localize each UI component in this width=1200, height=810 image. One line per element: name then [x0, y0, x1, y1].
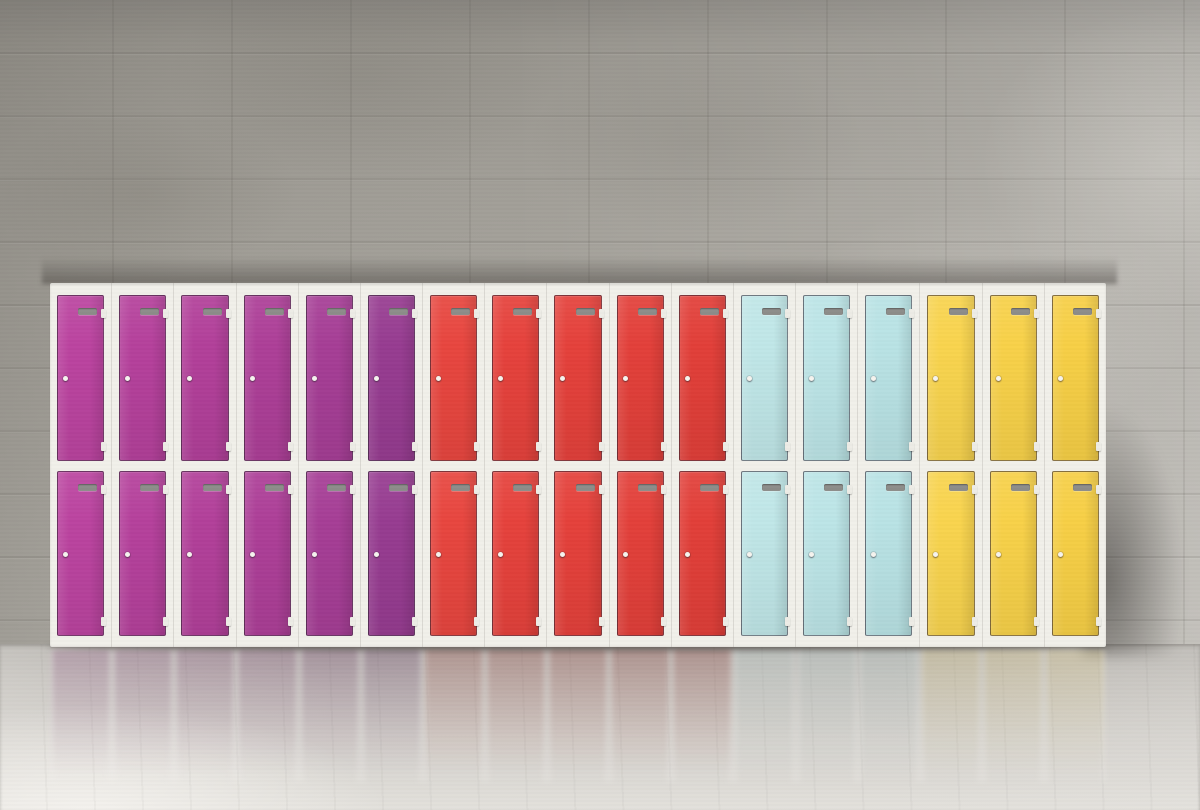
hinge-top-icon [599, 309, 604, 318]
locker-door-bottom [554, 471, 601, 636]
hinge-bottom-icon [163, 617, 168, 626]
hinge-top-icon [1034, 485, 1039, 494]
hinge-bottom-icon [723, 617, 728, 626]
hinge-bottom-icon [101, 617, 106, 626]
locker-door-bottom [119, 471, 166, 636]
hinge-top-icon [226, 309, 231, 318]
locker-reflection-band [797, 650, 857, 782]
vent-slot-icon [327, 484, 346, 491]
locker-column-yellow [919, 283, 981, 647]
keyhole-icon [187, 552, 192, 557]
locker-room-photo [0, 0, 1200, 810]
locker-door-bottom [927, 471, 974, 636]
keyhole-icon [685, 376, 690, 381]
keyhole-icon [560, 552, 565, 557]
keyhole-icon [312, 552, 317, 557]
keyhole-icon [498, 552, 503, 557]
locker-door-top [57, 295, 104, 461]
locker-door-top [990, 295, 1037, 461]
locker-column-cyan [795, 283, 857, 647]
keyhole-icon [871, 552, 876, 557]
locker-door-top [306, 295, 353, 461]
locker-column-magenta [173, 283, 235, 647]
vent-slot-icon [576, 484, 595, 491]
hinge-bottom-icon [288, 617, 293, 626]
keyhole-icon [623, 552, 628, 557]
locker-door-bottom [492, 471, 539, 636]
vent-slot-icon [140, 484, 159, 491]
hinge-top-icon [163, 485, 168, 494]
vent-slot-icon [638, 308, 657, 315]
locker-door-top [492, 295, 539, 461]
keyhole-icon [933, 376, 938, 381]
locker-column-cyan [733, 283, 795, 647]
locker-reflection-band [175, 650, 235, 782]
hinge-bottom-icon [412, 442, 417, 451]
locker-reflection-band [859, 650, 919, 782]
hinge-bottom-icon [536, 617, 541, 626]
locker-door-bottom [368, 471, 415, 636]
keyhole-icon [436, 376, 441, 381]
vent-slot-icon [140, 308, 159, 315]
vent-slot-icon [389, 484, 408, 491]
locker-column-magenta [236, 283, 298, 647]
keyhole-icon [871, 376, 876, 381]
hinge-top-icon [1096, 485, 1101, 494]
hinge-bottom-icon [350, 617, 355, 626]
hinge-bottom-icon [785, 442, 790, 451]
hinge-bottom-icon [972, 617, 977, 626]
vent-slot-icon [700, 484, 719, 491]
vent-slot-icon [451, 484, 470, 491]
keyhole-icon [63, 552, 68, 557]
locker-reflection-band [921, 650, 981, 782]
locker-door-top [1052, 295, 1099, 461]
locker-door-top [679, 295, 726, 461]
cast-shadow-top [42, 257, 1117, 284]
keyhole-icon [747, 376, 752, 381]
locker-column-magenta [50, 283, 111, 647]
keyhole-icon [996, 552, 1001, 557]
locker-column-magenta [298, 283, 360, 647]
keyhole-icon [374, 376, 379, 381]
locker-reflection-band [424, 650, 484, 782]
vent-slot-icon [824, 484, 843, 491]
hinge-top-icon [536, 309, 541, 318]
hinge-top-icon [909, 309, 914, 318]
hinge-top-icon [599, 485, 604, 494]
hinge-top-icon [1034, 309, 1039, 318]
hinge-bottom-icon [1096, 442, 1101, 451]
keyhole-icon [125, 552, 130, 557]
hinge-top-icon [288, 309, 293, 318]
hinge-bottom-icon [1034, 617, 1039, 626]
hinge-top-icon [661, 309, 666, 318]
locker-door-top [741, 295, 788, 461]
hinge-bottom-icon [412, 617, 417, 626]
vent-slot-icon [265, 308, 284, 315]
hinge-bottom-icon [909, 442, 914, 451]
keyhole-icon [187, 376, 192, 381]
locker-column-magenta [360, 283, 422, 647]
vent-slot-icon [513, 484, 532, 491]
vent-slot-icon [265, 484, 284, 491]
locker-reflection-band [983, 650, 1043, 782]
vent-slot-icon [762, 308, 781, 315]
locker-door-bottom [617, 471, 664, 636]
locker-column-yellow [982, 283, 1044, 647]
locker-reflection-band [672, 650, 732, 782]
hinge-bottom-icon [163, 442, 168, 451]
locker-floor-reflection [50, 650, 1106, 782]
hinge-top-icon [723, 309, 728, 318]
hinge-top-icon [101, 309, 106, 318]
hinge-top-icon [163, 309, 168, 318]
locker-door-top [617, 295, 664, 461]
locker-column-magenta [111, 283, 173, 647]
hinge-top-icon [661, 485, 666, 494]
keyhole-icon [250, 552, 255, 557]
hinge-top-icon [1096, 309, 1101, 318]
locker-door-top [554, 295, 601, 461]
hinge-top-icon [723, 485, 728, 494]
vent-slot-icon [451, 308, 470, 315]
vent-slot-icon [886, 308, 905, 315]
locker-door-top [181, 295, 228, 461]
hinge-bottom-icon [288, 442, 293, 451]
locker-door-top [803, 295, 850, 461]
vent-slot-icon [949, 484, 968, 491]
hinge-bottom-icon [536, 442, 541, 451]
keyhole-icon [685, 552, 690, 557]
keyhole-icon [809, 376, 814, 381]
hinge-top-icon [536, 485, 541, 494]
hinge-bottom-icon [785, 617, 790, 626]
vent-slot-icon [1073, 308, 1092, 315]
locker-column-red [671, 283, 733, 647]
vent-slot-icon [389, 308, 408, 315]
locker-reflection-band [51, 650, 111, 782]
keyhole-icon [1058, 552, 1063, 557]
hinge-bottom-icon [909, 617, 914, 626]
hinge-top-icon [288, 485, 293, 494]
hinge-bottom-icon [350, 442, 355, 451]
hinge-bottom-icon [661, 442, 666, 451]
locker-door-bottom [57, 471, 104, 636]
locker-door-top [119, 295, 166, 461]
hinge-bottom-icon [226, 617, 231, 626]
locker-door-bottom [430, 471, 477, 636]
vent-slot-icon [886, 484, 905, 491]
locker-reflection-band [734, 650, 794, 782]
locker-reflection-band [1045, 650, 1105, 782]
vent-slot-icon [78, 308, 97, 315]
keyhole-icon [436, 552, 441, 557]
hinge-top-icon [847, 485, 852, 494]
locker-column-yellow [1044, 283, 1106, 647]
keyhole-icon [63, 376, 68, 381]
hinge-top-icon [412, 485, 417, 494]
locker-door-bottom [1052, 471, 1099, 636]
keyhole-icon [374, 552, 379, 557]
hinge-bottom-icon [101, 442, 106, 451]
locker-door-top [927, 295, 974, 461]
hinge-top-icon [226, 485, 231, 494]
locker-door-top [244, 295, 291, 461]
vent-slot-icon [203, 308, 222, 315]
locker-column-red [422, 283, 484, 647]
keyhole-icon [498, 376, 503, 381]
vent-slot-icon [824, 308, 843, 315]
hinge-top-icon [972, 485, 977, 494]
locker-reflection-band [610, 650, 670, 782]
vent-slot-icon [700, 308, 719, 315]
vent-slot-icon [1073, 484, 1092, 491]
locker-door-bottom [990, 471, 1037, 636]
vent-slot-icon [1011, 308, 1030, 315]
locker-column-cyan [857, 283, 919, 647]
locker-column-red [609, 283, 671, 647]
vent-slot-icon [949, 308, 968, 315]
locker-door-top [865, 295, 912, 461]
hinge-bottom-icon [474, 617, 479, 626]
hinge-top-icon [847, 309, 852, 318]
hinge-top-icon [350, 485, 355, 494]
hinge-bottom-icon [847, 442, 852, 451]
locker-column-red [546, 283, 608, 647]
hinge-bottom-icon [847, 617, 852, 626]
locker-door-bottom [679, 471, 726, 636]
keyhole-icon [1058, 376, 1063, 381]
hinge-bottom-icon [723, 442, 728, 451]
locker-reflection-band [486, 650, 546, 782]
hinge-top-icon [785, 485, 790, 494]
keyhole-icon [809, 552, 814, 557]
vent-slot-icon [203, 484, 222, 491]
keyhole-icon [312, 376, 317, 381]
locker-reflection-band [237, 650, 297, 782]
hinge-top-icon [101, 485, 106, 494]
locker-reflection-band [362, 650, 422, 782]
locker-door-bottom [306, 471, 353, 636]
locker-door-bottom [181, 471, 228, 636]
keyhole-icon [623, 376, 628, 381]
vent-slot-icon [1011, 484, 1030, 491]
vent-slot-icon [513, 308, 532, 315]
vent-slot-icon [78, 484, 97, 491]
locker-reflection-band [300, 650, 360, 782]
vent-slot-icon [638, 484, 657, 491]
keyhole-icon [250, 376, 255, 381]
hinge-bottom-icon [972, 442, 977, 451]
hinge-bottom-icon [1034, 442, 1039, 451]
keyhole-icon [747, 552, 752, 557]
vent-slot-icon [327, 308, 346, 315]
hinge-bottom-icon [661, 617, 666, 626]
keyhole-icon [560, 376, 565, 381]
hinge-top-icon [785, 309, 790, 318]
hinge-top-icon [909, 485, 914, 494]
keyhole-icon [996, 376, 1001, 381]
vent-slot-icon [762, 484, 781, 491]
locker-door-top [430, 295, 477, 461]
vent-slot-icon [576, 308, 595, 315]
keyhole-icon [933, 552, 938, 557]
keyhole-icon [125, 376, 130, 381]
locker-door-bottom [803, 471, 850, 636]
hinge-bottom-icon [226, 442, 231, 451]
hinge-bottom-icon [474, 442, 479, 451]
hinge-top-icon [474, 485, 479, 494]
locker-reflection-band [548, 650, 608, 782]
hinge-bottom-icon [1096, 617, 1101, 626]
locker-door-bottom [741, 471, 788, 636]
hinge-top-icon [350, 309, 355, 318]
hinge-bottom-icon [599, 442, 604, 451]
locker-column-red [484, 283, 546, 647]
locker-door-bottom [244, 471, 291, 636]
locker-reflection-band [113, 650, 173, 782]
hinge-top-icon [972, 309, 977, 318]
hinge-top-icon [474, 309, 479, 318]
hinge-top-icon [412, 309, 417, 318]
locker-row [50, 283, 1106, 647]
hinge-bottom-icon [599, 617, 604, 626]
locker-door-top [368, 295, 415, 461]
locker-door-bottom [865, 471, 912, 636]
